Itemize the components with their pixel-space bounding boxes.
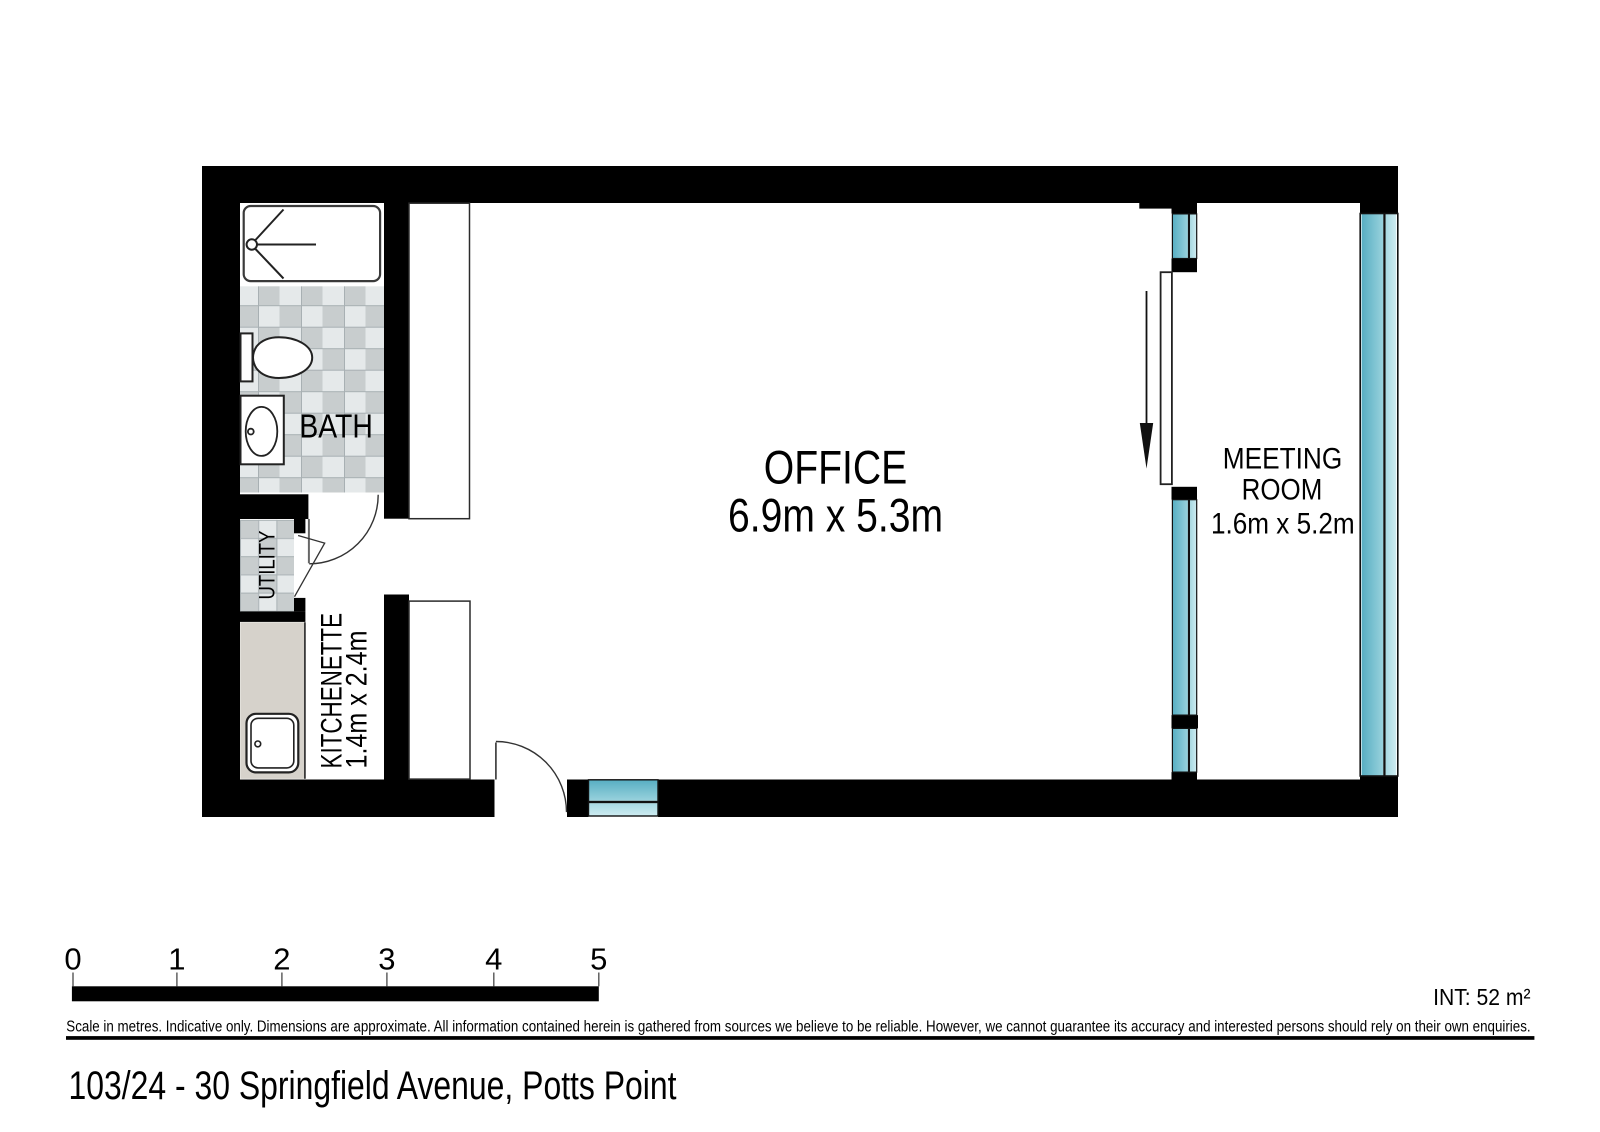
svg-text:6.9m x 5.3m: 6.9m x 5.3m [728, 488, 943, 541]
svg-text:1.6m x 5.2m: 1.6m x 5.2m [1211, 508, 1355, 541]
svg-text:1.4m x 2.4m: 1.4m x 2.4m [341, 631, 374, 769]
svg-text:4: 4 [485, 941, 502, 976]
svg-text:UTILITY: UTILITY [255, 530, 280, 599]
svg-text:BATH: BATH [299, 407, 373, 444]
svg-text:Scale in metres. Indicative on: Scale in metres. Indicative only. Dimens… [66, 1018, 1530, 1035]
svg-text:2: 2 [273, 941, 290, 976]
svg-text:ROOM: ROOM [1242, 474, 1323, 507]
svg-text:5: 5 [590, 941, 607, 976]
svg-text:INT: 52 m²: INT: 52 m² [1433, 984, 1531, 1010]
svg-text:OFFICE: OFFICE [764, 441, 908, 494]
svg-text:0: 0 [64, 941, 81, 976]
svg-text:MEETING: MEETING [1223, 443, 1343, 476]
svg-text:103/24 - 30 Springfield Avenue: 103/24 - 30 Springfield Avenue, Potts Po… [69, 1064, 677, 1108]
svg-text:3: 3 [378, 941, 395, 976]
svg-text:1: 1 [168, 941, 185, 976]
